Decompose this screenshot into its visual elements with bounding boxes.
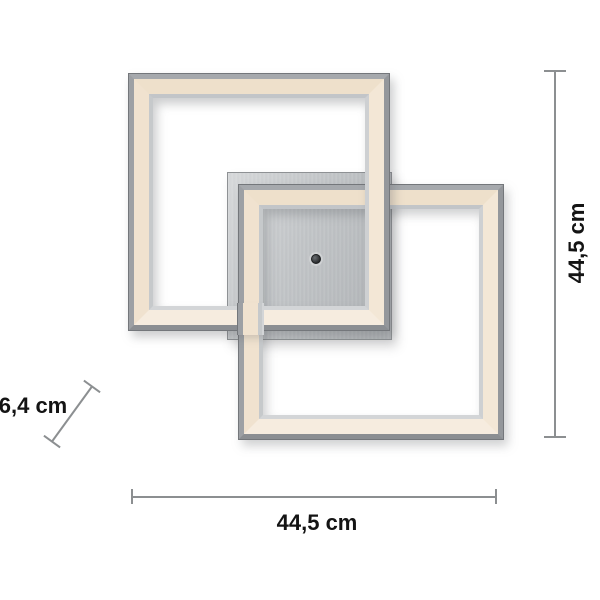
depth-dimension-label: 6,4 cm	[0, 393, 67, 419]
square-frame-top-left	[128, 73, 390, 331]
width-dimension-cap-left	[131, 489, 133, 504]
width-dimension-cap-right	[495, 489, 497, 504]
frame-weave-overlap	[237, 303, 264, 335]
height-dimension-line	[554, 71, 556, 437]
product-dimension-diagram: 44,5 cm 44,5 cm 6,4 cm	[0, 0, 600, 600]
depth-dimension-cap-bottom	[43, 435, 60, 448]
height-dimension-cap-top	[544, 70, 566, 72]
height-dimension-cap-bottom	[544, 436, 566, 438]
inner-chrome-border	[149, 94, 369, 310]
width-dimension-label: 44,5 cm	[277, 510, 358, 536]
width-dimension-line	[132, 496, 497, 498]
height-dimension-label: 44,5 cm	[564, 203, 590, 284]
